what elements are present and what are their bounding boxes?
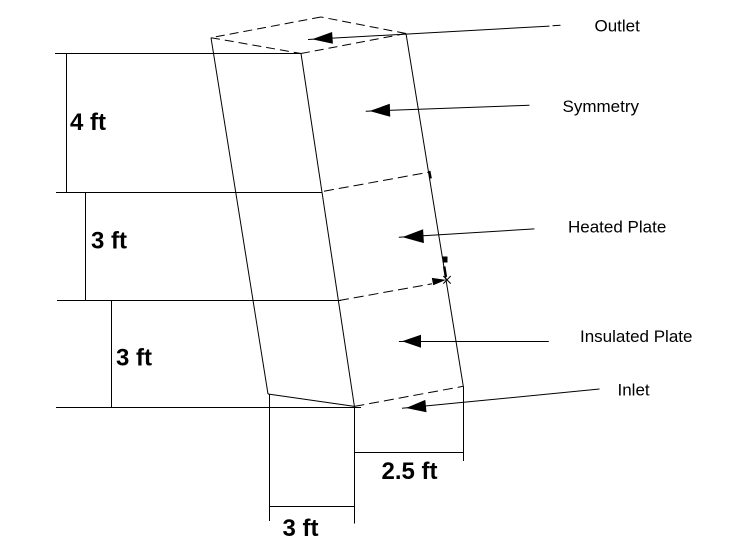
svg-text:Heated Plate: Heated Plate <box>568 218 666 237</box>
svg-text:4 ft: 4 ft <box>70 109 106 136</box>
svg-text:3 ft: 3 ft <box>91 228 127 255</box>
svg-text:Insulated Plate: Insulated Plate <box>580 327 692 346</box>
svg-text:3 ft: 3 ft <box>283 515 319 539</box>
svg-text:Inlet: Inlet <box>618 380 650 399</box>
svg-text:Symmetry: Symmetry <box>563 97 640 116</box>
svg-text:3 ft: 3 ft <box>116 344 152 371</box>
svg-text:2.5 ft: 2.5 ft <box>382 458 438 485</box>
svg-text:Outlet: Outlet <box>595 17 641 36</box>
